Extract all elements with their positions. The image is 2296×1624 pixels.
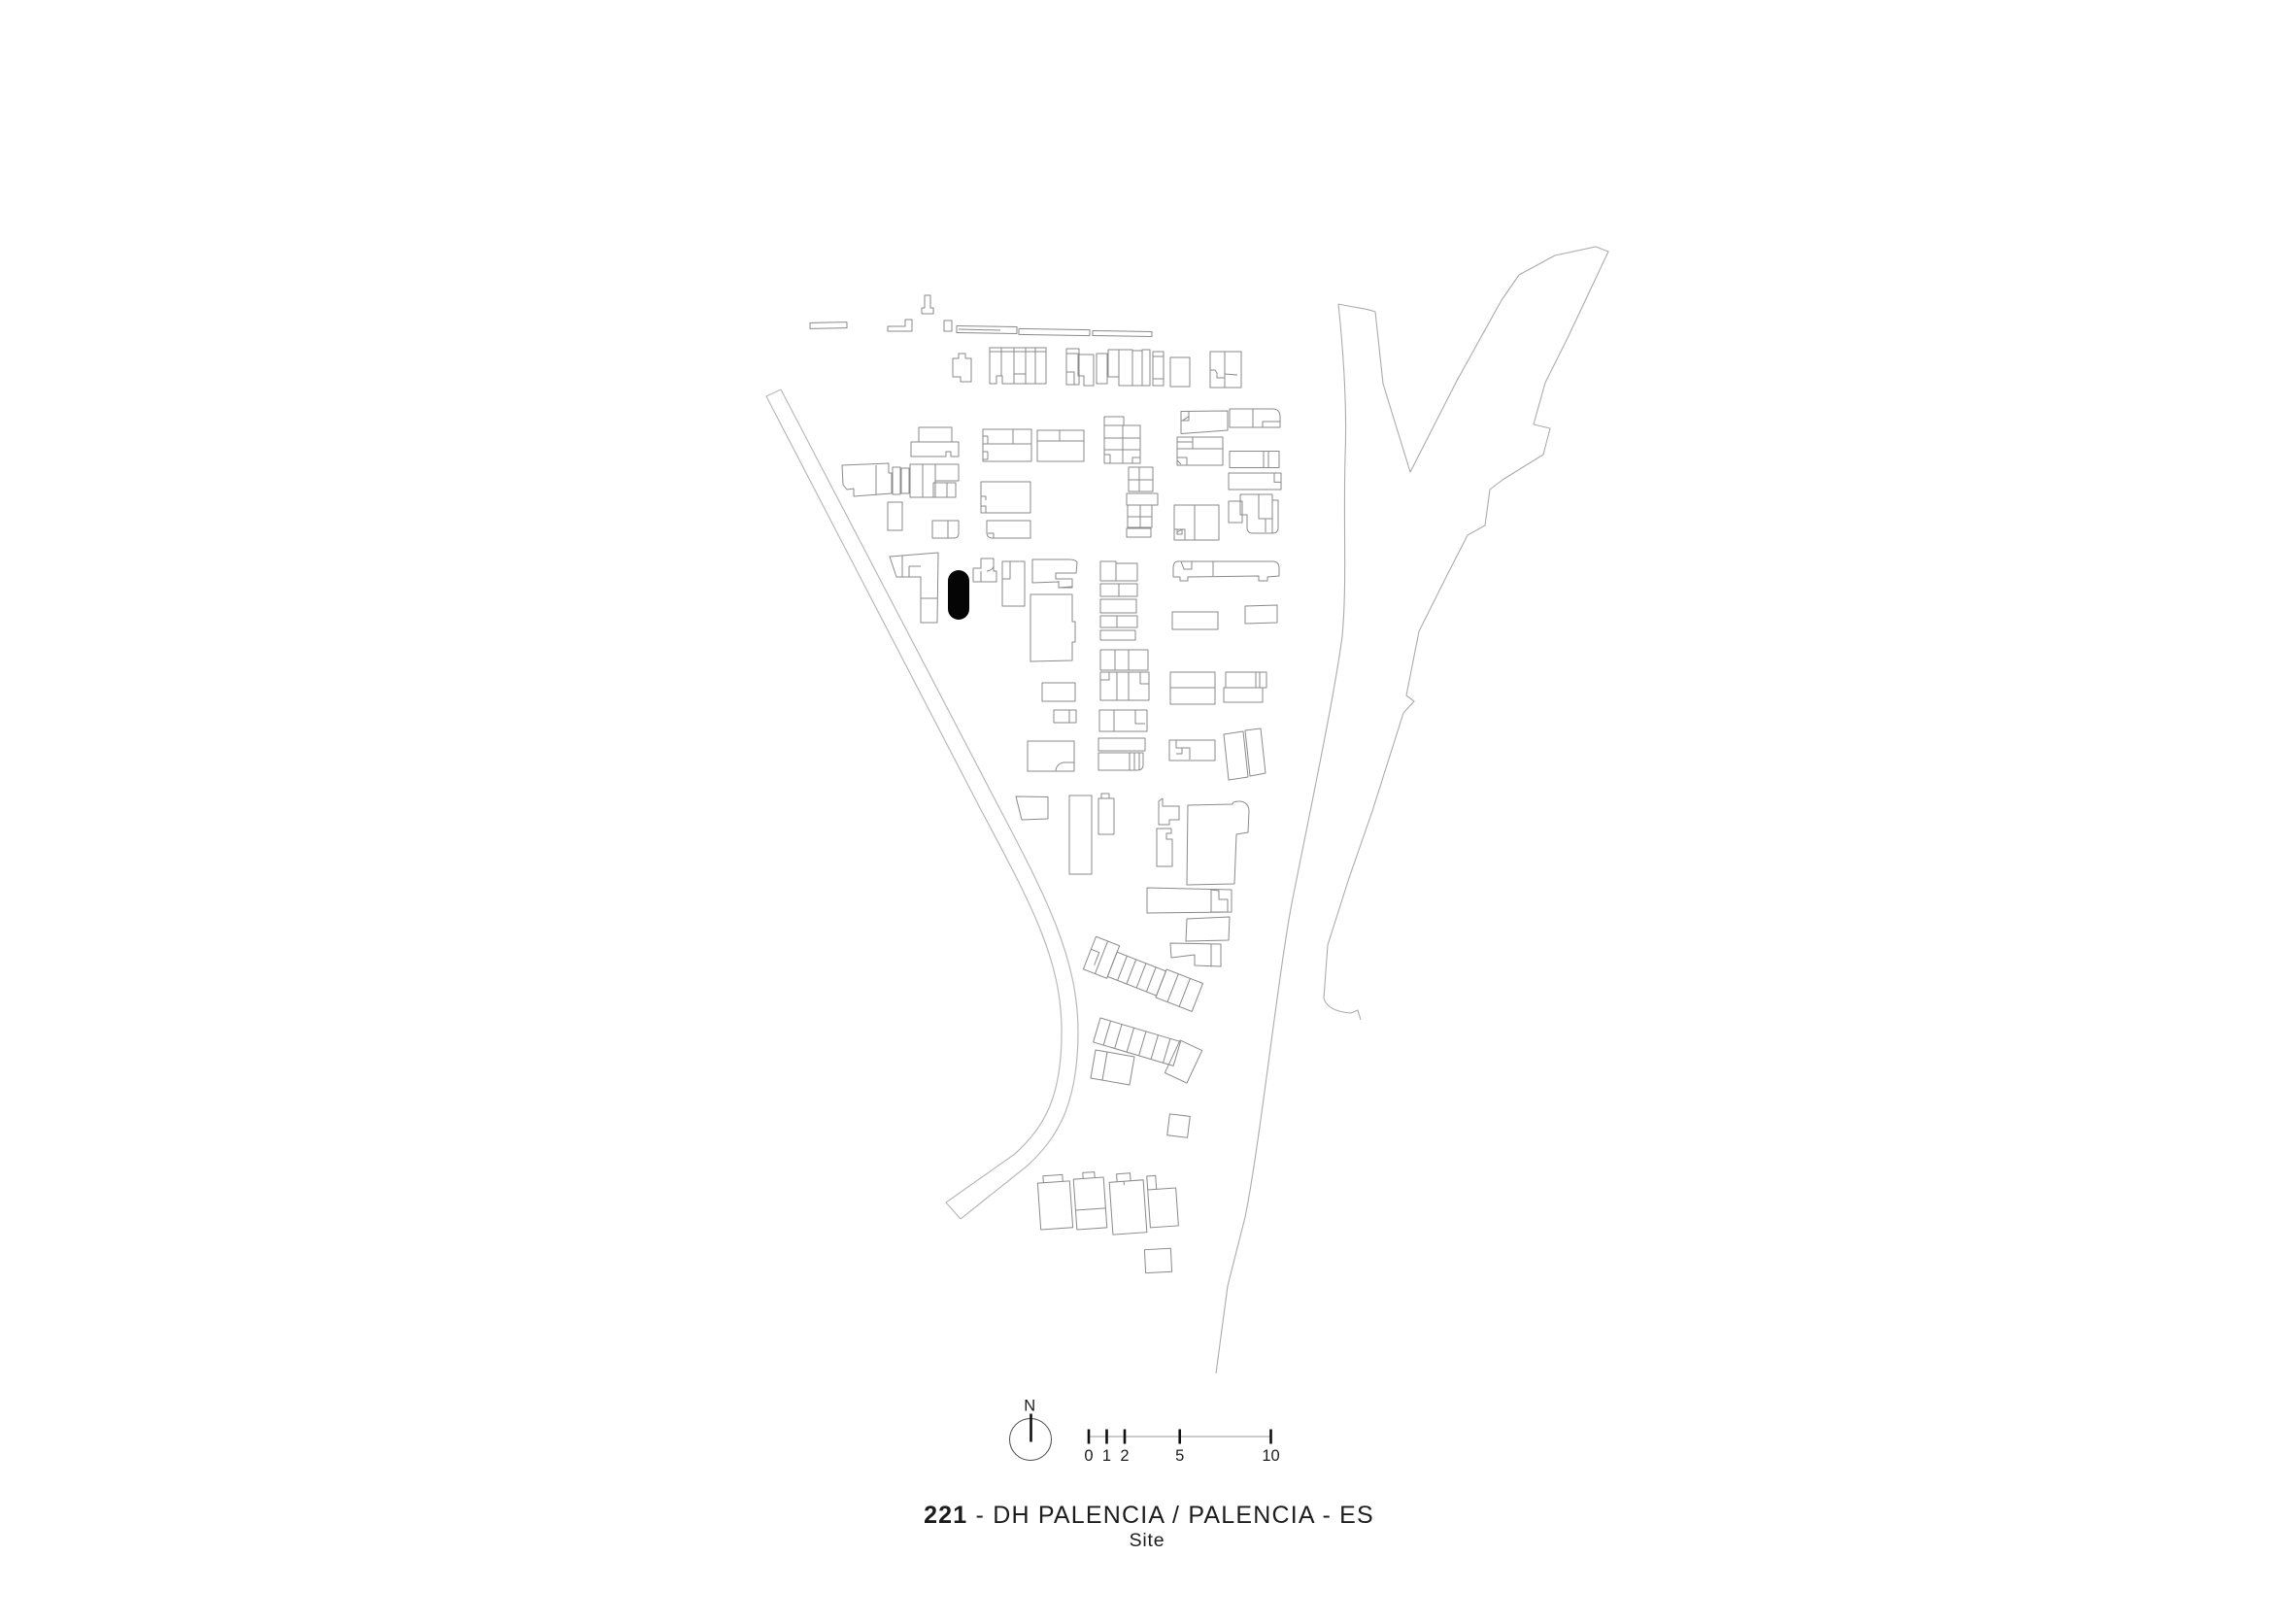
svg-text:5: 5 [1175,1447,1184,1465]
svg-text:10: 10 [1262,1447,1279,1465]
svg-text:Site: Site [1130,1530,1165,1551]
svg-text:1: 1 [1102,1447,1111,1465]
svg-text:0: 0 [1084,1447,1093,1465]
svg-text:2: 2 [1120,1447,1129,1465]
svg-text:N: N [1024,1398,1035,1415]
svg-text:221 - DH PALENCIA / PALENCIA -: 221 - DH PALENCIA / PALENCIA - ES [924,1502,1374,1529]
